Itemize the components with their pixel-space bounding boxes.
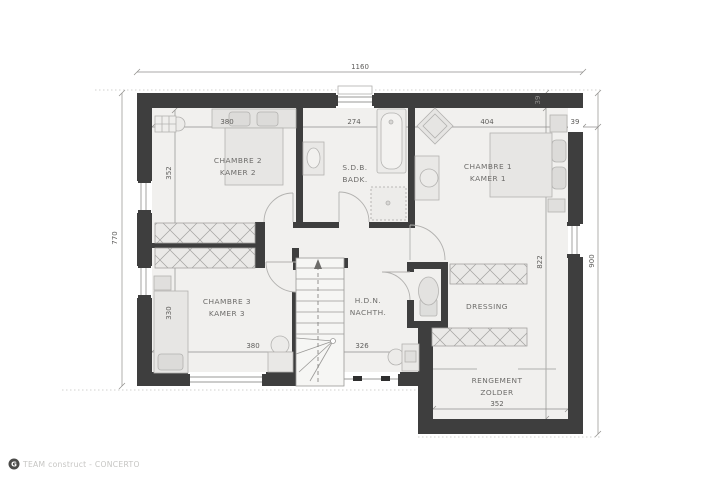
staircase	[296, 258, 344, 386]
dim-hall-width: 326	[355, 342, 369, 350]
chair	[420, 169, 438, 187]
room-label-chambre3-fr: CHAMBRE 3	[203, 297, 251, 306]
dim-total-width: 1160	[351, 63, 369, 71]
room-label-zolder-fr: RENGEMENT	[472, 376, 523, 385]
room-label-chambre2-nl: KAMER 2	[220, 168, 256, 177]
dim-chambre3-depth: 330	[165, 306, 173, 319]
dim-chambre2-depth: 352	[165, 166, 173, 179]
room-label-chambre3-nl: KAMER 3	[209, 309, 245, 318]
brand-logo-glyph: G	[11, 461, 17, 469]
room-label-dressing: DRESSING	[466, 302, 508, 311]
room-label-chambre2-fr: CHAMBRE 2	[214, 156, 262, 165]
room-label-hall-fr: H.D.N.	[355, 296, 381, 305]
dim-wall-right: 39	[571, 118, 580, 126]
room-label-sdb-nl: BADK.	[342, 175, 367, 184]
dim-total-right: 900	[588, 254, 596, 267]
pillow	[552, 140, 566, 162]
room-label-chambre1-nl: KAMER 1	[470, 174, 506, 183]
dim-sdb-width: 274	[347, 118, 361, 126]
room-label-hall-nl: NACHTH.	[350, 308, 387, 317]
dim-chambre1-width: 404	[480, 118, 494, 126]
chair	[271, 336, 289, 354]
wardrobe-dressing-bottom	[432, 328, 527, 346]
floor-plan: CHAMBRE 2 KAMER 2 S.D.B. BADK. CHAMBRE 1…	[0, 0, 720, 480]
pillow	[552, 167, 566, 189]
nightstand	[154, 276, 171, 290]
dim-zolder-width: 352	[490, 400, 503, 408]
wardrobe-dressing-top	[450, 264, 527, 284]
dim-wall-top: 39	[534, 96, 542, 105]
brand: G TEAM construct - CONCERTO	[9, 459, 140, 470]
room-label-sdb-fr: S.D.B.	[342, 163, 367, 172]
dim-chambre3-width: 380	[246, 342, 259, 350]
washbasin	[307, 148, 320, 168]
closet-chambre3	[155, 248, 255, 268]
pillow	[257, 112, 278, 126]
dim-total-left: 770	[111, 231, 119, 244]
floor-plan-page: CHAMBRE 2 KAMER 2 S.D.B. BADK. CHAMBRE 1…	[0, 0, 720, 480]
room-label-zolder-nl: ZOLDER	[480, 388, 513, 397]
room-label-chambre1-fr: CHAMBRE 1	[464, 162, 512, 171]
brand-name: TEAM construct - CONCERTO	[22, 460, 140, 469]
dim-chambre2-width: 380	[220, 118, 233, 126]
closet-chambre2	[155, 223, 255, 243]
pillow	[158, 354, 183, 370]
nightstand	[550, 115, 567, 132]
dim-dressing-depth: 822	[536, 255, 544, 268]
desk-chambre3	[268, 352, 293, 372]
bench	[548, 199, 565, 212]
